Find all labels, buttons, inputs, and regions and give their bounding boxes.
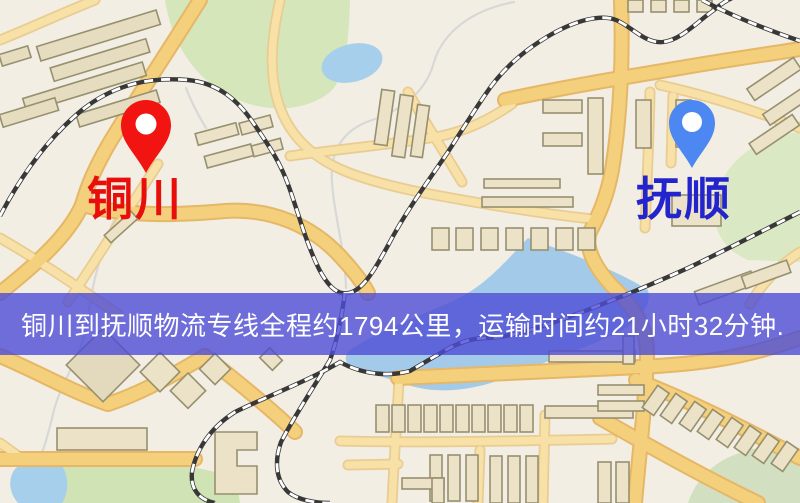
- map-container: 铜川 抚顺 铜川到抚顺物流专线全程约1794公里，运输时间约21小时32分钟.: [0, 0, 800, 503]
- map-pin-icon: [669, 100, 715, 168]
- origin-city-label: 铜川: [87, 177, 183, 223]
- destination-pin[interactable]: [667, 98, 717, 170]
- origin-pin[interactable]: [119, 98, 173, 174]
- map-pin-icon: [121, 100, 171, 173]
- route-info-banner: 铜川到抚顺物流专线全程约1794公里，运输时间约21小时32分钟.: [0, 293, 800, 355]
- map-image: [0, 0, 800, 503]
- pin-hole: [682, 112, 702, 132]
- pin-hole: [136, 114, 157, 135]
- route-info-text: 铜川到抚顺物流专线全程约1794公里，运输时间约21小时32分钟.: [21, 306, 784, 343]
- destination-city-label: 抚顺: [636, 177, 732, 223]
